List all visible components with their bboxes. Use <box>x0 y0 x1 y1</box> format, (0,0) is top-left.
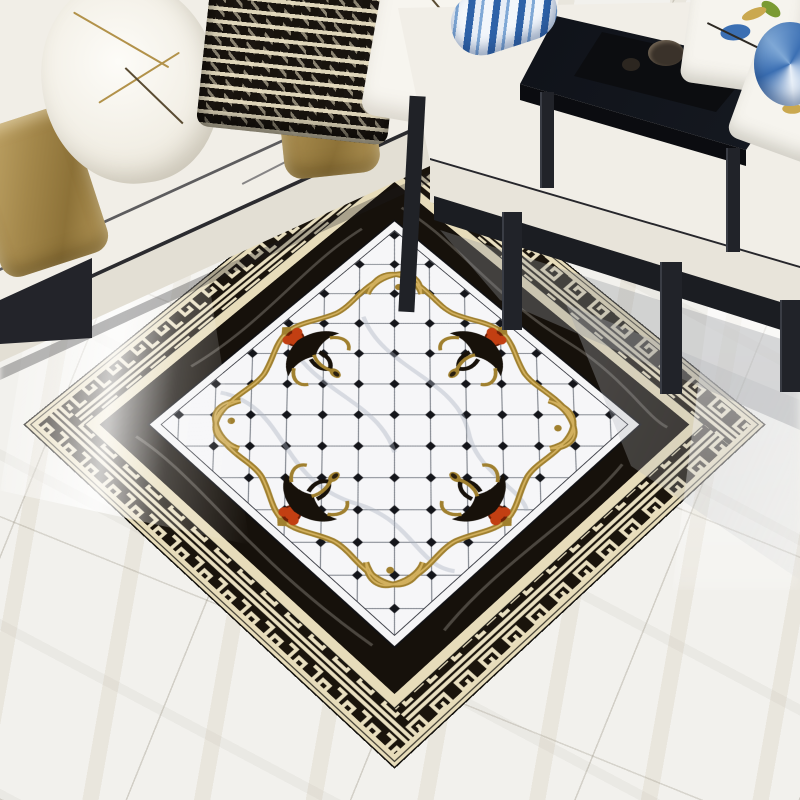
product-photo <box>0 0 800 800</box>
daybed-leg <box>780 300 800 392</box>
gold-leaf-motif <box>740 4 768 23</box>
blue-round-cushion <box>754 22 800 106</box>
daybed-leg <box>502 212 522 330</box>
blue-bird-motif <box>720 23 752 42</box>
mirror-frame-edge <box>92 0 114 65</box>
green-leaf-motif <box>759 0 784 21</box>
daybed-leg <box>660 262 682 394</box>
white-pillow-gold-branch-embroidery <box>29 0 232 195</box>
black-white-geometric-pillow <box>196 0 405 146</box>
tea-jar <box>712 44 734 62</box>
tea-table-leg <box>540 92 554 188</box>
tea-cup <box>690 62 708 75</box>
floor-glare-top <box>415 35 590 185</box>
gold-satin-pillow <box>0 102 113 281</box>
tea-table-leg <box>726 148 740 252</box>
teapot <box>648 40 684 66</box>
bird-embroidery-pillow <box>679 0 800 98</box>
tea-cup <box>622 58 640 71</box>
